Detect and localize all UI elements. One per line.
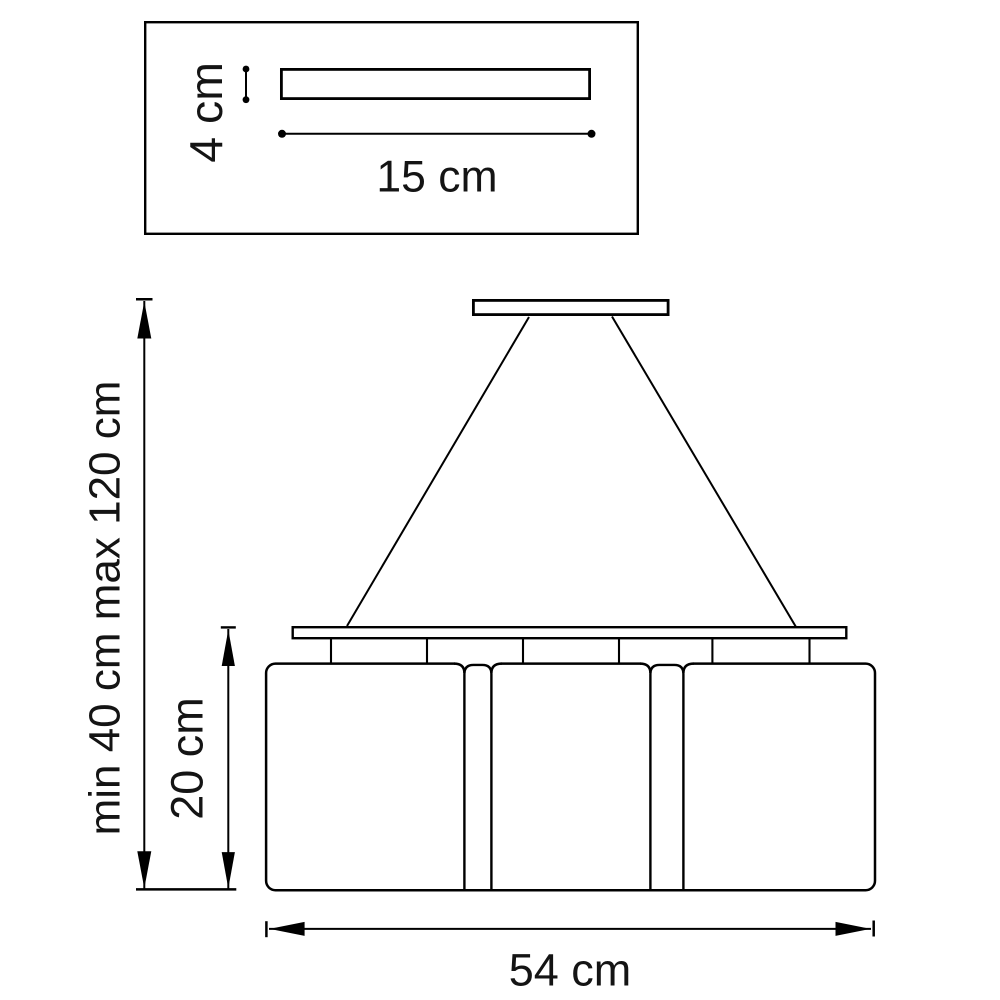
- svg-text:min 40 cm max 120 cm: min 40 cm max 120 cm: [81, 381, 130, 836]
- svg-text:4 cm: 4 cm: [180, 62, 232, 163]
- svg-text:15 cm: 15 cm: [376, 152, 497, 201]
- svg-text:20 cm: 20 cm: [161, 697, 212, 820]
- svg-text:54 cm: 54 cm: [509, 944, 632, 995]
